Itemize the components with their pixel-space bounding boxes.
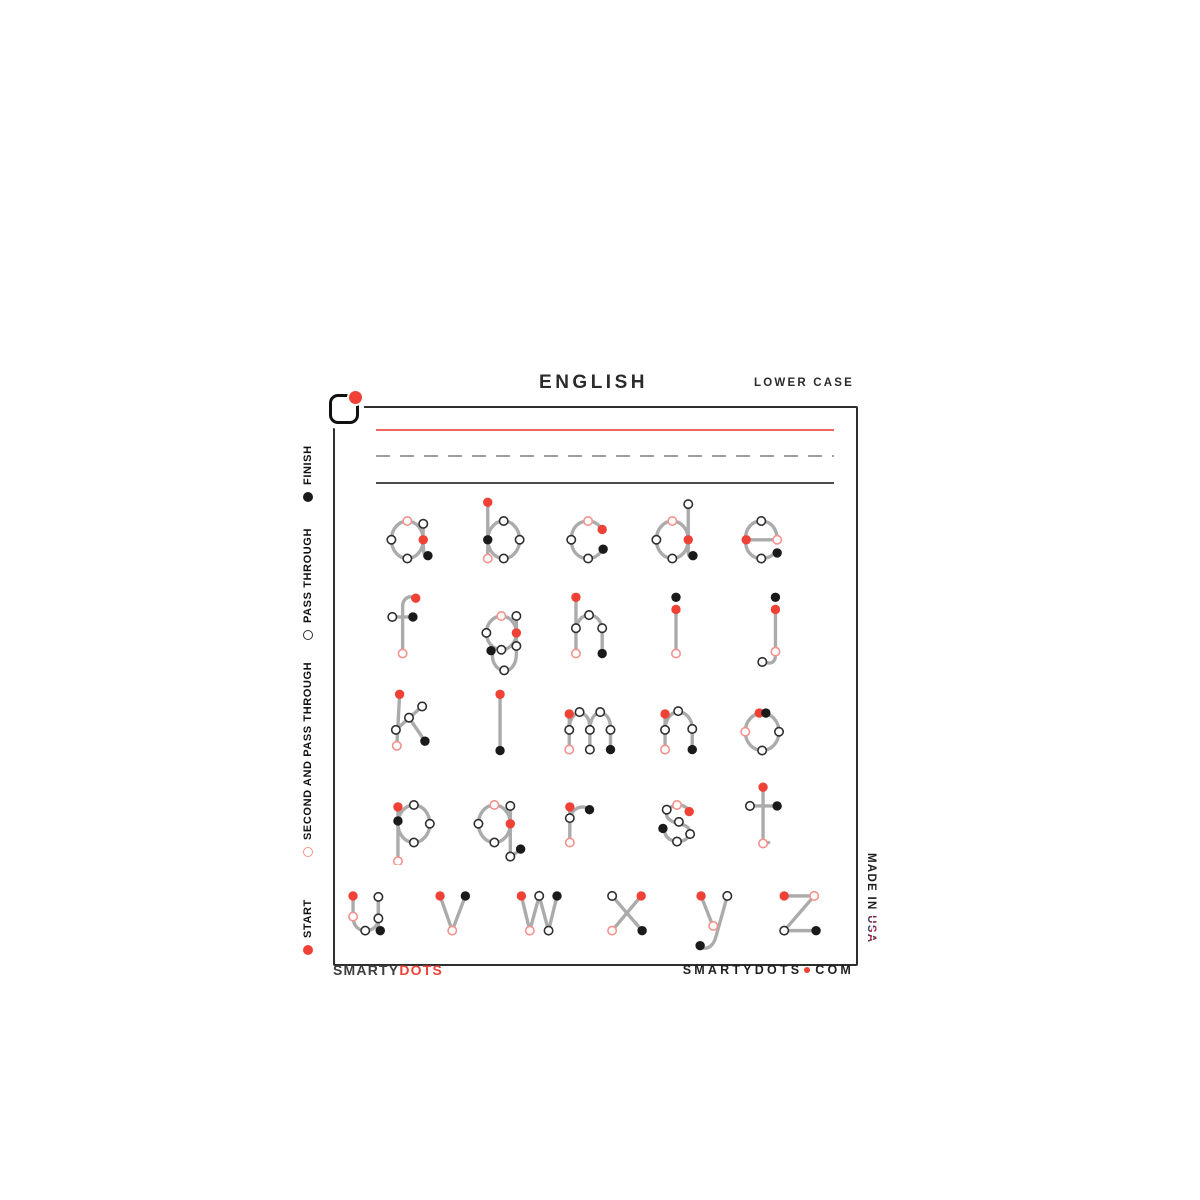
trace-stroke <box>397 694 400 746</box>
finish-dot-icon <box>486 646 495 655</box>
finish-dot-icon <box>598 648 607 657</box>
finish-dot-icon <box>423 551 432 560</box>
pass-dot-icon <box>512 641 520 649</box>
second-dot-icon <box>661 745 669 753</box>
pass-dot-icon <box>535 891 543 899</box>
start-dot-icon <box>435 891 444 900</box>
start-dot-icon <box>565 802 574 811</box>
start-dot-icon <box>684 535 693 544</box>
finish-dot-icon <box>408 612 417 621</box>
finish-dot-icon <box>552 891 561 900</box>
second-dot-icon <box>810 891 818 899</box>
letter-j <box>737 586 797 676</box>
finish-dot-icon <box>688 551 697 560</box>
pass-dot-icon <box>474 819 482 827</box>
letter-l <box>471 683 531 773</box>
start-dot-icon <box>696 891 705 900</box>
legend-label: START <box>302 899 314 938</box>
pass-dot-icon <box>758 657 766 665</box>
letter-y <box>687 865 747 955</box>
legend-item-second: SECOND AND PASS THROUGH <box>302 662 314 857</box>
site-tld: COM <box>815 963 854 977</box>
letter-d <box>647 491 707 581</box>
pass-dot-icon <box>757 516 765 524</box>
pass-dot-icon <box>544 926 552 934</box>
pass-dot-icon <box>668 554 676 562</box>
start-dot-icon <box>483 497 492 506</box>
pass-dot-icon <box>490 838 498 846</box>
finish-dot-icon <box>376 925 385 934</box>
pass-dot-icon <box>419 519 427 527</box>
letter-r <box>552 775 612 865</box>
pass-dot-icon <box>675 817 683 825</box>
pass-dot-icon <box>780 926 788 934</box>
pass-dot-icon <box>584 554 592 562</box>
pass-dot-icon <box>566 813 574 821</box>
pass-dot-icon <box>662 805 670 813</box>
start-dot-icon <box>393 802 402 811</box>
second-dot-icon <box>349 912 357 920</box>
finish-dot-icon <box>761 708 770 717</box>
pass-dot-icon <box>387 535 395 543</box>
smartydots-logo-icon <box>329 394 359 424</box>
second-dot-icon <box>497 611 505 619</box>
page-subtitle: LOWER CASE <box>333 377 854 389</box>
pass-dot-icon <box>688 724 696 732</box>
usa-flag-text: USA <box>865 915 877 943</box>
pass-dot-icon <box>482 628 490 636</box>
pass-dot-icon <box>374 914 382 922</box>
pass-dot-icon <box>775 727 783 735</box>
writing-line-top <box>376 429 834 431</box>
start-dot-icon <box>780 891 789 900</box>
pass-dot-icon <box>506 852 514 860</box>
finish-dot-icon <box>495 745 504 754</box>
website-url: SMARTYDOTSCOM <box>333 963 854 977</box>
pass-dot-icon <box>515 535 523 543</box>
legend-item-pass: PASS THROUGH <box>302 528 314 640</box>
writing-line-middle <box>376 455 834 457</box>
second-dot-icon <box>484 554 492 562</box>
letter-t <box>734 775 794 865</box>
second-dot-icon <box>566 838 574 846</box>
finish-dot-icon <box>695 940 704 949</box>
finish-dot-icon <box>811 925 820 934</box>
trace-stroke <box>521 895 557 930</box>
finish-dot-icon <box>637 925 646 934</box>
pass-dot-icon <box>757 554 765 562</box>
pass-dot-icon <box>661 725 669 733</box>
site-name: SMARTYDOTS <box>683 963 803 977</box>
logo-red-dot-icon <box>349 391 362 404</box>
made-in-label: MADE IN USA <box>865 853 877 943</box>
letter-w <box>512 865 572 955</box>
pass-dot-icon <box>585 610 593 618</box>
second-dot-icon <box>398 649 406 657</box>
start-dot-icon <box>495 689 504 698</box>
pass-dot-icon <box>575 707 583 715</box>
start-dot-icon <box>771 604 780 613</box>
letter-k <box>379 683 439 773</box>
second-dot-icon <box>771 647 779 655</box>
pass-dot-icon <box>598 623 606 631</box>
trace-stroke <box>440 895 465 930</box>
letter-e <box>735 491 795 581</box>
finish-dot-icon <box>772 801 781 810</box>
pass-dot-icon <box>608 891 616 899</box>
finish-dot-icon <box>516 844 525 853</box>
pass-dot-icon <box>586 725 594 733</box>
pass-dot-icon <box>652 535 660 543</box>
letter-i <box>646 586 706 676</box>
start-dot-icon <box>571 592 580 601</box>
letter-m <box>558 683 618 773</box>
pass-dot-icon <box>497 645 505 653</box>
second-dot-icon <box>584 516 592 524</box>
letter-g <box>477 586 537 676</box>
pass-dot-icon <box>410 800 418 808</box>
trace-stroke <box>784 895 816 930</box>
pass-dot-icon <box>410 838 418 846</box>
letter-h <box>560 586 620 676</box>
second-dot-icon <box>773 535 781 543</box>
start-dot-icon <box>411 593 420 602</box>
trace-stroke <box>403 596 416 653</box>
pass-dot-icon <box>512 611 520 619</box>
letter-u <box>339 865 399 955</box>
legend-label: PASS THROUGH <box>302 528 314 623</box>
letter-a <box>382 491 442 581</box>
letter-x <box>599 865 659 955</box>
second-dot-icon <box>565 745 573 753</box>
pass-dot-icon <box>596 707 604 715</box>
pass-dot-icon <box>403 554 411 562</box>
letter-z <box>772 865 832 955</box>
letter-o <box>734 683 794 773</box>
second-dot-icon <box>490 800 498 808</box>
pass-dot-icon <box>686 829 694 837</box>
second-dot-icon <box>672 649 680 657</box>
start-dot-icon <box>419 535 428 544</box>
letter-q <box>470 775 530 865</box>
start-dot-icon <box>742 535 751 544</box>
start-dot-icon <box>660 709 669 718</box>
finish-dot-icon <box>483 535 492 544</box>
start-dot-icon <box>598 524 607 533</box>
legend-item-finish: FINISH <box>302 445 314 502</box>
made-in-text: MADE IN <box>865 853 877 915</box>
start-dot-icon <box>671 604 680 613</box>
second-dot-icon <box>448 926 456 934</box>
start-dot-icon <box>517 891 526 900</box>
legend-item-start: START <box>302 899 314 955</box>
pass-dot-icon <box>405 713 413 721</box>
finish-dot-icon <box>585 805 594 814</box>
start-dot-icon <box>303 945 313 955</box>
letter-s <box>647 775 707 865</box>
pass-dot-icon <box>361 926 369 934</box>
pass-dot-icon <box>499 516 507 524</box>
start-dot-icon <box>395 689 404 698</box>
pass-dot-icon <box>606 725 614 733</box>
trace-stroke <box>353 895 378 930</box>
start-dot-icon <box>565 709 574 718</box>
letter-c <box>560 491 620 581</box>
pass-dot-icon <box>418 702 426 710</box>
finish-dot-icon <box>598 544 607 553</box>
letter-n <box>651 683 711 773</box>
pass-dot-icon <box>684 499 692 507</box>
letter-f <box>382 586 442 676</box>
start-dot-icon <box>348 891 357 900</box>
worksheet-page: ENGLISH LOWER CASE FINISHPASS THROUGHSEC… <box>0 0 1200 1200</box>
legend-label: FINISH <box>302 445 314 485</box>
finish-dot-icon <box>461 891 470 900</box>
finish-dot-icon <box>771 592 780 601</box>
finish-dot-icon <box>688 744 697 753</box>
second-dot-icon <box>668 516 676 524</box>
pass-dot-icon <box>388 612 396 620</box>
pass-dot-icon <box>565 725 573 733</box>
pass-dot-icon <box>673 837 681 845</box>
letter-b <box>469 491 529 581</box>
writing-line-bottom <box>376 482 834 484</box>
pass-dot-icon <box>572 623 580 631</box>
trace-stroke <box>688 502 693 556</box>
start-dot-icon <box>512 628 521 637</box>
trace-stroke <box>745 713 779 751</box>
finish-dot-icon <box>420 736 429 745</box>
start-dot-icon <box>637 891 646 900</box>
pass-dot-icon <box>758 746 766 754</box>
finish-dot-icon <box>658 823 667 832</box>
finish-dot-icon <box>773 548 782 557</box>
second-dot-icon <box>403 516 411 524</box>
letter-v <box>426 865 486 955</box>
pass-dot-icon <box>426 819 434 827</box>
letter-p <box>382 775 442 865</box>
second-dot-icon <box>673 800 681 808</box>
url-dot-icon <box>804 967 810 973</box>
finish-dot-icon <box>303 492 313 502</box>
second-dot-icon <box>303 847 313 857</box>
pass-dot-icon <box>374 892 382 900</box>
second-dot-icon <box>759 839 767 847</box>
finish-dot-icon <box>671 592 680 601</box>
second-dot-icon <box>393 741 401 749</box>
start-dot-icon <box>758 782 767 791</box>
second-dot-icon <box>709 921 717 929</box>
legend-label: SECOND AND PASS THROUGH <box>302 662 314 840</box>
pass-dot-icon <box>500 666 508 674</box>
pass-dot-icon <box>567 535 575 543</box>
second-dot-icon <box>394 857 402 865</box>
pass-dot-icon <box>392 725 400 733</box>
pass-dot-icon <box>674 706 682 714</box>
trace-stroke <box>763 787 769 843</box>
pass-dot-icon <box>303 630 313 640</box>
finish-dot-icon <box>393 816 402 825</box>
trace-stroke <box>576 615 602 653</box>
pass-dot-icon <box>723 891 731 899</box>
finish-dot-icon <box>606 744 615 753</box>
pass-dot-icon <box>499 554 507 562</box>
start-dot-icon <box>506 819 515 828</box>
second-dot-icon <box>526 926 534 934</box>
second-dot-icon <box>572 649 580 657</box>
pass-dot-icon <box>746 801 754 809</box>
start-dot-icon <box>685 806 694 815</box>
pass-dot-icon <box>506 801 514 809</box>
second-dot-icon <box>741 727 749 735</box>
pass-dot-icon <box>586 745 594 753</box>
second-dot-icon <box>608 926 616 934</box>
